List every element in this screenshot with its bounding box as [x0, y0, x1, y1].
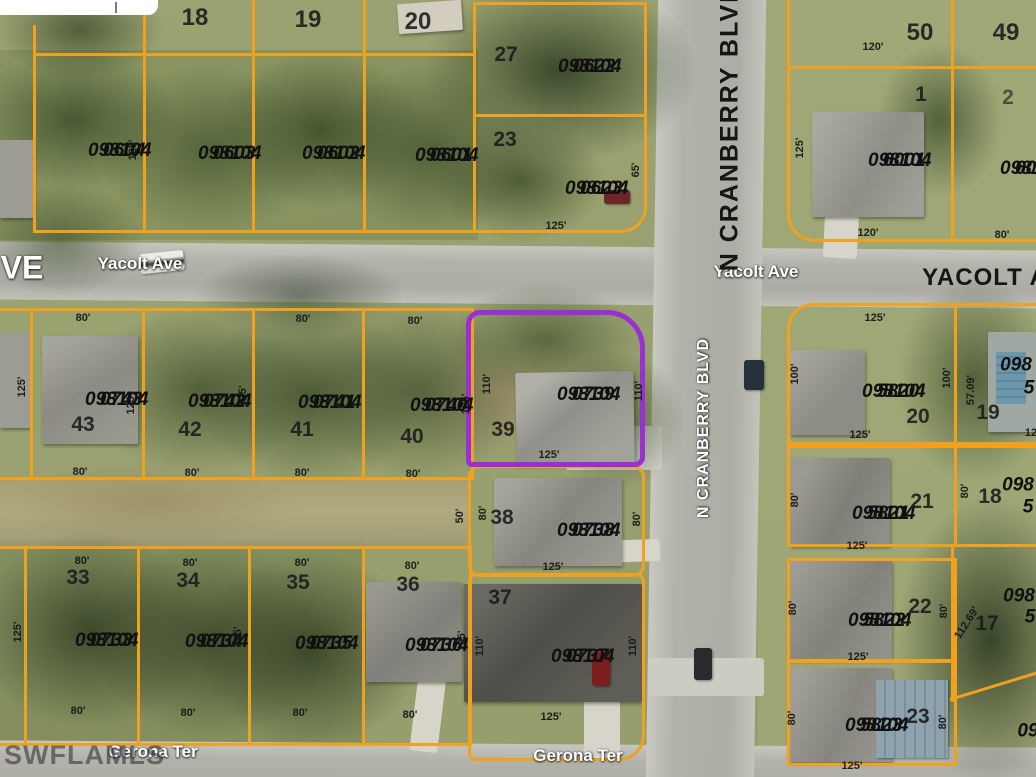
dimension-label: 100': [789, 364, 801, 385]
parcel-line: [950, 671, 1036, 701]
dimension-label: 80': [789, 493, 801, 508]
lot-number-highlighted: 39: [491, 418, 514, 442]
apn-line2: 5822: [863, 612, 905, 631]
lot-number: 50: [907, 19, 934, 47]
dimension-label: 50': [454, 509, 466, 524]
dimension-label: 110': [633, 381, 645, 401]
dimension-label: 80': [408, 315, 423, 327]
lot-number: 23: [906, 705, 929, 729]
parcel-boundary: [363, 53, 476, 233]
parcel-line: [0, 308, 33, 311]
lot-number: 18: [978, 485, 1001, 509]
parcel-boundary: [951, 66, 1036, 242]
dimension-label: 80': [76, 312, 91, 324]
watermark: SWFLAMLS: [4, 740, 165, 771]
lot-number: 38: [490, 506, 513, 530]
dimension-label: 80': [787, 601, 799, 616]
dimension-label: 80': [405, 560, 420, 572]
apn-line2: 0739: [572, 386, 614, 405]
parcel-line: [951, 0, 954, 66]
dimension-label: 125': [127, 140, 139, 161]
dimension-label: 125': [847, 540, 868, 552]
top-white-bar: [0, 0, 158, 15]
dimension-label: 65': [630, 163, 642, 178]
apn-line2: 0741: [313, 394, 355, 413]
apn-fragment: 5: [1023, 499, 1034, 518]
apn-line2: 0733: [90, 632, 132, 651]
lot-number: 49: [993, 19, 1020, 47]
dimension-label: 80': [181, 707, 196, 719]
street-label-yacolt-ave: Yacolt Ave: [98, 254, 183, 274]
dirt-track: [0, 480, 470, 546]
dimension-label: 80': [75, 555, 90, 567]
apn-line2: 5821: [867, 505, 909, 524]
parcel-line: [787, 0, 790, 66]
lot-number: 20: [906, 405, 929, 429]
dimension-label: 125': [232, 627, 244, 648]
parcel-line: [0, 546, 27, 549]
top-white-bar-tick: [115, 2, 117, 13]
street-label-yacolt-ave-east: YACOLT A: [922, 264, 1036, 292]
dimension-label: 80': [295, 467, 310, 479]
dimension-label: 80': [995, 229, 1010, 241]
lot-number: 2: [1002, 86, 1014, 110]
dimension-label: 125': [865, 312, 886, 324]
dimension-label: 80': [296, 313, 311, 325]
dimension-label: 80': [786, 711, 798, 726]
apn-fragment: 098: [1002, 477, 1034, 496]
apn-line2: 5820: [877, 383, 919, 402]
dimension-label: 80': [938, 604, 950, 619]
dimension-label: 125': [850, 429, 871, 441]
lot-number: 19: [295, 6, 322, 34]
apn-line2: 6001: [883, 152, 925, 171]
street-label-gerona-ter: Gerona Ter: [533, 746, 622, 766]
dimension-label: 125': [543, 561, 564, 573]
parcel-line: [363, 0, 366, 55]
lot-number: 35: [286, 571, 309, 595]
street-label-partial: VE: [1, 250, 44, 287]
lot-number: 20: [405, 8, 432, 36]
dimension-label: 80': [293, 707, 308, 719]
dimension-label: 110': [474, 636, 486, 656]
dimension-label: 125': [842, 760, 863, 772]
apn-line2: 0601: [430, 147, 472, 166]
lot-number: 33: [66, 566, 89, 590]
dimension-label: 110': [627, 636, 639, 656]
lot-number: 27: [494, 43, 517, 67]
apn-line2: 0735: [310, 635, 352, 654]
parcel-line: [951, 547, 954, 702]
apn-fragment: 09: [1017, 723, 1036, 742]
dimension-label: 125': [456, 631, 468, 652]
lot-number: 36: [396, 573, 419, 597]
parcel-boundary: [362, 308, 474, 480]
dimension-label: 80': [403, 709, 418, 721]
apn-line2: 5823: [860, 717, 902, 736]
dimension-label: 125': [539, 449, 560, 461]
parcel-line: [252, 0, 255, 55]
lot-number: 34: [176, 569, 199, 593]
dimension-label: 125': [794, 138, 806, 159]
dimension-label: 80': [406, 468, 421, 480]
apn-line2: 0623: [580, 180, 622, 199]
apn-line2: 0603: [213, 145, 255, 164]
lot-number: 37: [488, 586, 511, 610]
parcel-line: [33, 25, 36, 55]
apn-fragment: 098: [1003, 588, 1035, 607]
aerial-parcel-map: 0981040604 0981040603 0981040602 0981040…: [0, 0, 1036, 777]
lot-number: 41: [290, 418, 313, 442]
dimension-label: 80': [183, 557, 198, 569]
apn-fragment: 5: [1024, 380, 1035, 399]
apn-line2: 6002: [1015, 160, 1036, 179]
dimension-label: 80': [185, 467, 200, 479]
dimension-label: 57.09': [965, 375, 977, 405]
house-roof-partial: [0, 140, 34, 218]
lot-number: 21: [910, 490, 933, 514]
road-yacolt-ave: [0, 241, 1036, 308]
dimension-label: 100': [941, 368, 953, 389]
dimension-label: 125': [848, 651, 869, 663]
car: [744, 360, 764, 390]
street-label-n-cranberry-blvd: N CRANBERRY BLVD: [695, 338, 713, 518]
dimension-label: 12: [1025, 427, 1036, 439]
dimension-label: 125': [541, 711, 562, 723]
apn-line2: 0622: [573, 58, 615, 77]
dimension-label: 80': [631, 512, 643, 527]
lot-number: 18: [182, 4, 209, 32]
dimension-label: 125': [125, 394, 137, 415]
dimension-label: 125': [16, 377, 28, 398]
apn-fragment: 098: [1000, 357, 1032, 376]
dimension-label: 80': [73, 466, 88, 478]
parcel-boundary: [787, 303, 957, 445]
lot-number: 43: [71, 413, 94, 437]
dimension-label: 80': [937, 715, 949, 730]
apn-line2: 0602: [317, 145, 359, 164]
lot-number: 19: [976, 401, 999, 425]
street-label-n-cranberry-blvd: N CRANBERRY BLVD: [716, 0, 745, 271]
apn-line2: 0737: [566, 648, 608, 667]
dimension-label: 125': [12, 622, 24, 643]
dimension-label: 125': [237, 386, 249, 407]
apn-fragment: 5: [1025, 609, 1036, 628]
dimension-label: 120': [863, 41, 884, 53]
dimension-label: 80': [477, 506, 489, 521]
dimension-label: 80': [71, 705, 86, 717]
car: [694, 648, 712, 680]
dimension-label: 125': [546, 220, 567, 232]
parcel-line: [0, 477, 33, 480]
dimension-label: 125': [460, 394, 472, 415]
lot-number: 42: [178, 418, 201, 442]
apn-line2: 0738: [572, 522, 614, 541]
dimension-label: 110': [481, 374, 493, 394]
lot-number: 23: [493, 128, 516, 152]
dimension-label: 80': [295, 557, 310, 569]
lot-number: 22: [908, 595, 931, 619]
dimension-label: 120': [858, 227, 879, 239]
parcel-boundary: [787, 660, 957, 766]
lot-number: 40: [400, 425, 423, 449]
dimension-label: 80': [959, 484, 971, 499]
lot-number: 1: [915, 83, 927, 107]
